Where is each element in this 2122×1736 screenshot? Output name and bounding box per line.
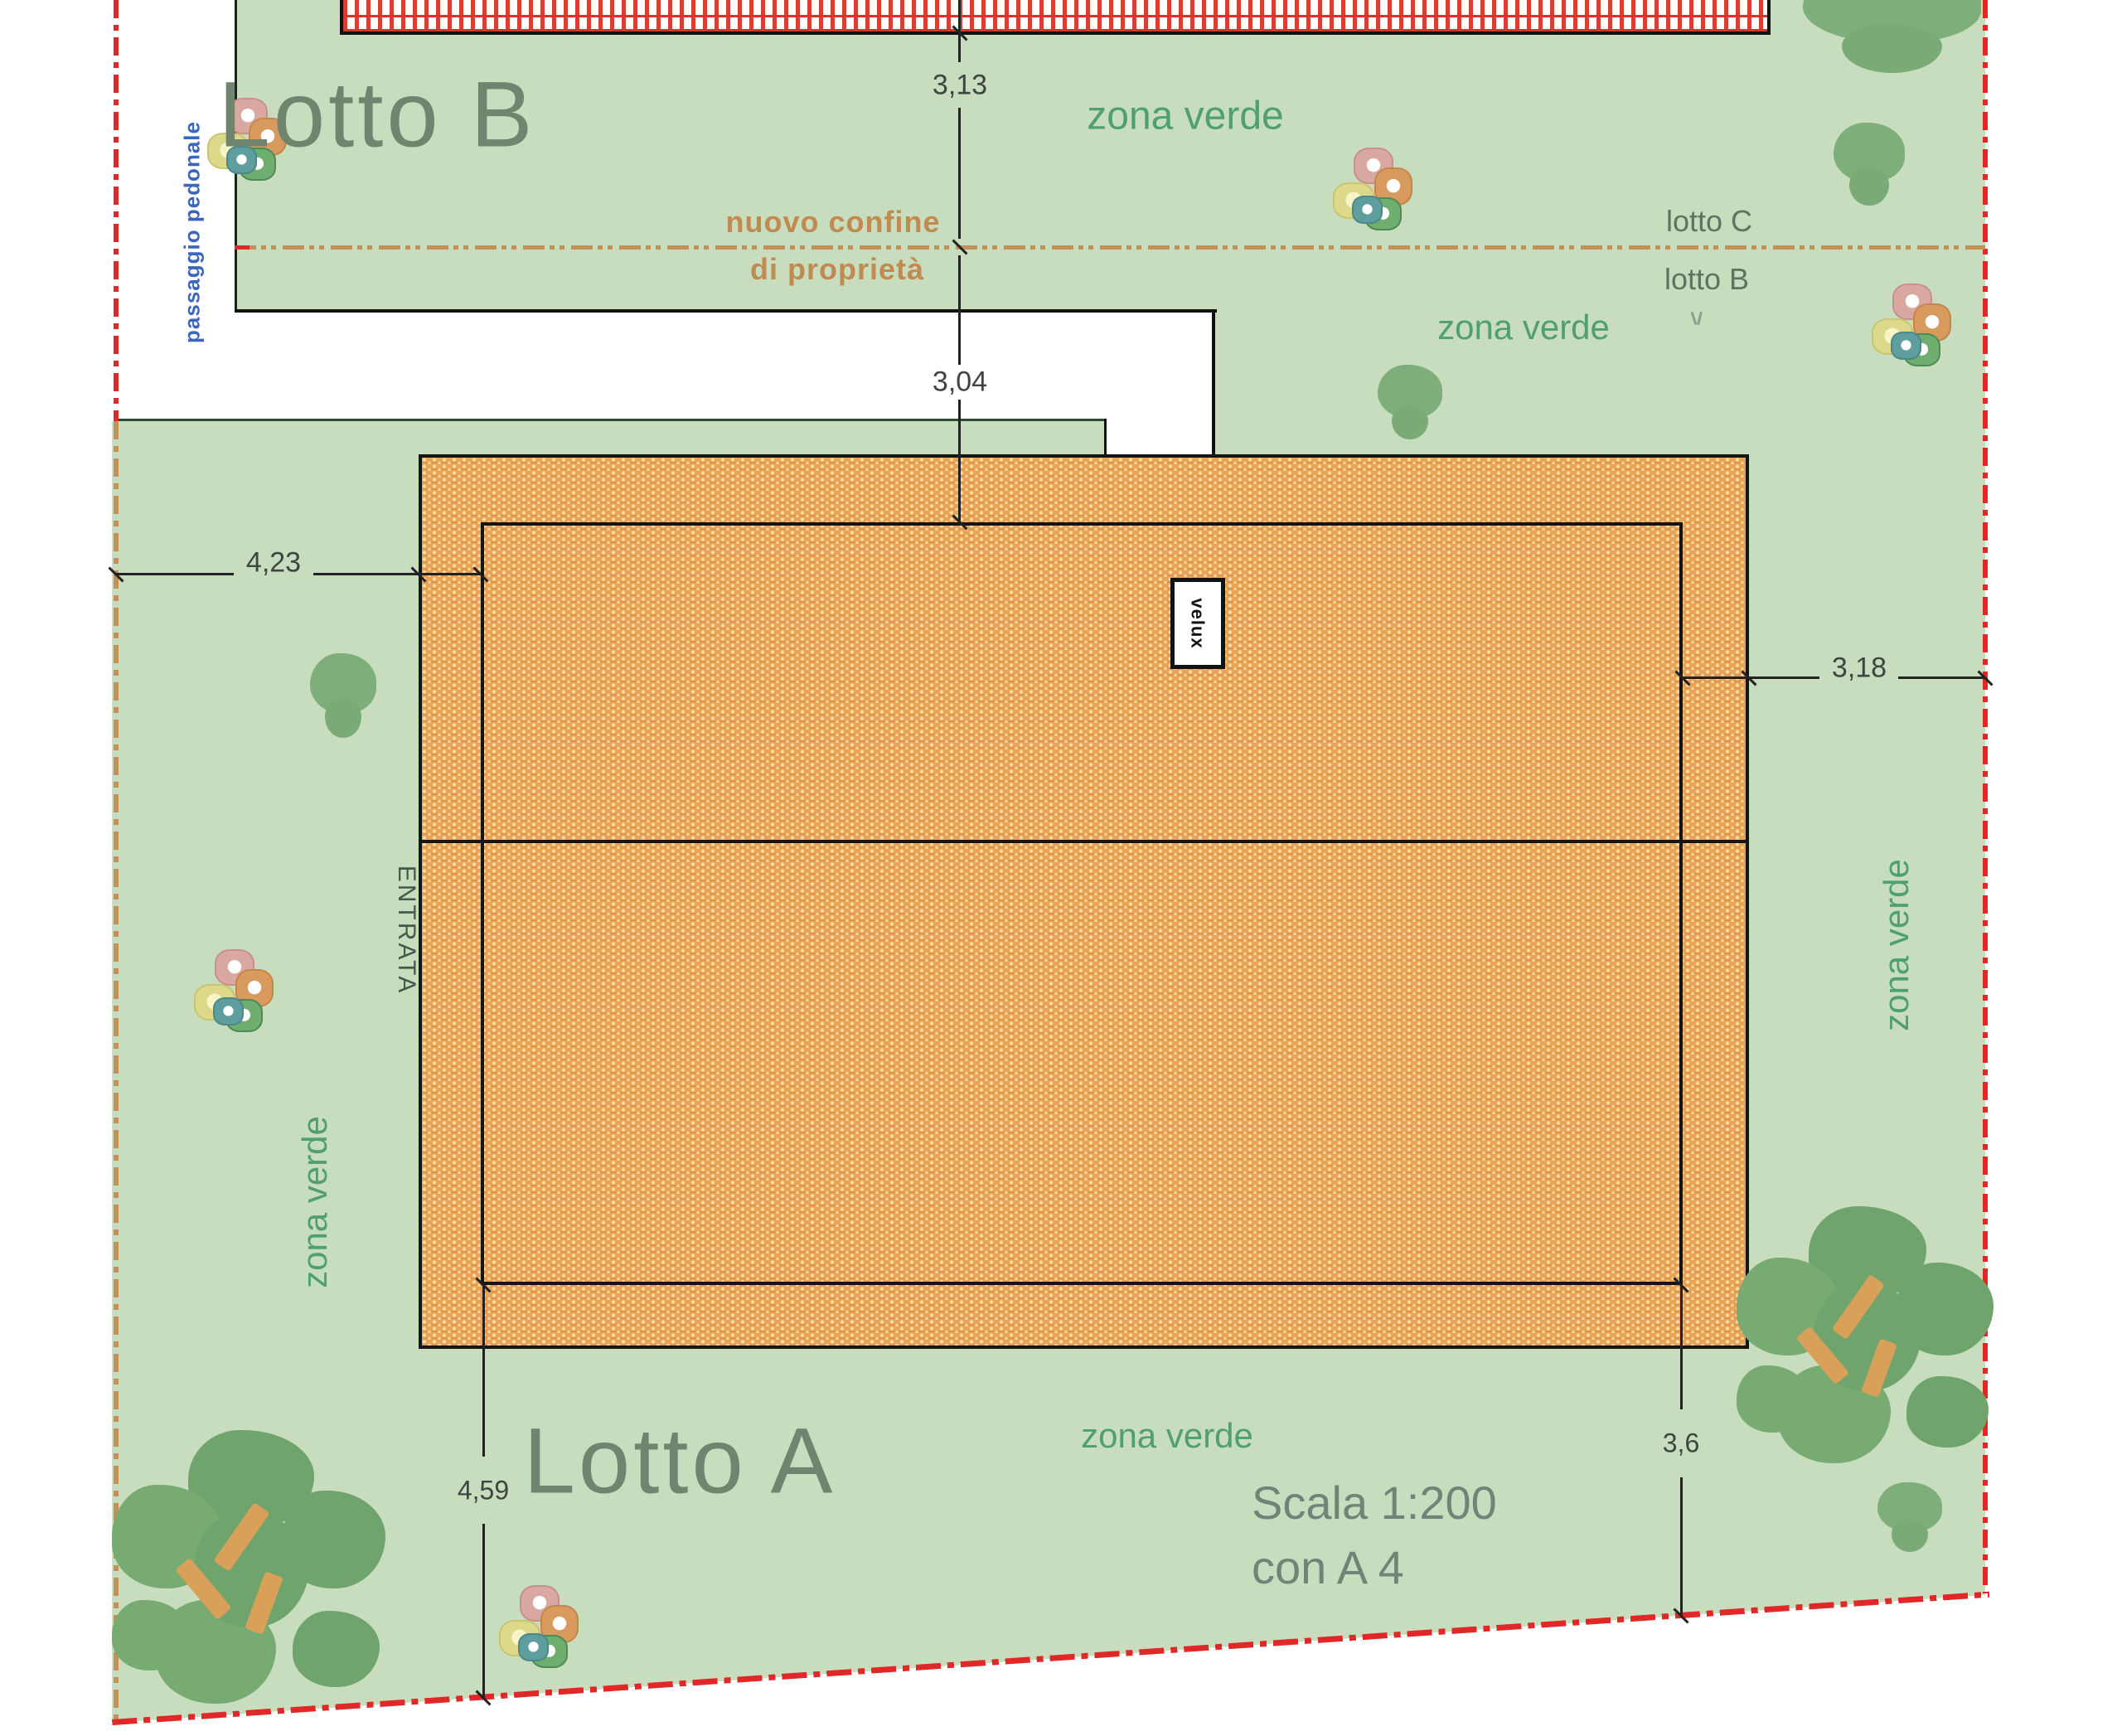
shrub-icon [499,1585,579,1668]
tree-icon [1803,0,1981,73]
shrub-icon [194,949,274,1032]
lot-c-small-label: lotto C [1666,204,1752,239]
dim-line [1680,1477,1683,1616]
zona-verde-label: zona verde [1437,308,1610,347]
dim-line [958,255,961,365]
lot-b-bottom-edge [235,309,1217,313]
dim-line [482,1285,485,1457]
building-wall-outline [481,522,1683,1285]
velux-label: velux [1187,598,1209,648]
dim-line [958,108,961,239]
zona-verde-label: zona verde [1877,859,1916,1031]
dim-line [1898,676,1985,679]
entrance-label: ENTRATA [392,866,420,996]
dim-value-bottom-left: 4,59 [458,1476,509,1506]
new-boundary-label-line2: di proprietà [750,252,924,287]
dim-line [958,400,961,522]
dim-value-top-upper: 3,13 [933,70,987,102]
notch-right-edge [1212,311,1215,456]
scale-note-line1: Scala 1:200 [1252,1476,1497,1530]
lot-b-building-roof [340,0,1771,35]
lot-a-title: Lotto A [524,1408,836,1515]
tree-icon [1834,123,1905,206]
new-property-boundary-start [235,245,250,250]
zona-verde-label: zona verde [1081,1416,1253,1456]
site-plan: velux 3,13 3,04 4,23 3,18 4,59 [0,0,2122,1736]
lot-a-top-edge [116,419,1106,421]
left-boundary-red-line [114,0,119,421]
dim-line [116,573,234,575]
new-boundary-label-line1: nuovo confine [726,205,941,240]
dim-line [482,1524,485,1698]
roof-ridge-line [419,840,1749,843]
zona-verde-label: zona verde [1087,94,1284,139]
tree-icon [310,653,376,738]
tree-icon [1378,365,1442,439]
lot-b-small-label: lotto B [1664,262,1749,297]
lot-a-top-step-edge [1104,419,1107,454]
grass-mark-icon [1688,312,1706,330]
scale-note-line2: con A 4 [1252,1540,1404,1594]
dim-line [1680,1285,1683,1409]
large-tree-icon [112,1430,385,1704]
new-property-boundary-line [235,245,1985,250]
tree-icon [1877,1482,1942,1552]
dim-value-right: 3,18 [1832,652,1887,685]
dim-line [313,573,481,575]
zona-verde-label: zona verde [295,1116,335,1288]
shrub-icon [1333,148,1412,230]
dim-value-left: 4,23 [246,547,301,579]
shrub-icon [1872,284,1951,366]
dim-value-top-lower: 3,04 [933,366,987,399]
velux-skylight: velux [1170,578,1225,669]
pedestrian-passage-label: passaggio pedonale [180,121,206,343]
large-tree-icon [1737,1206,1994,1463]
lot-b-title: Lotto B [219,61,536,168]
dim-value-bottom-right: 3,6 [1663,1428,1699,1459]
